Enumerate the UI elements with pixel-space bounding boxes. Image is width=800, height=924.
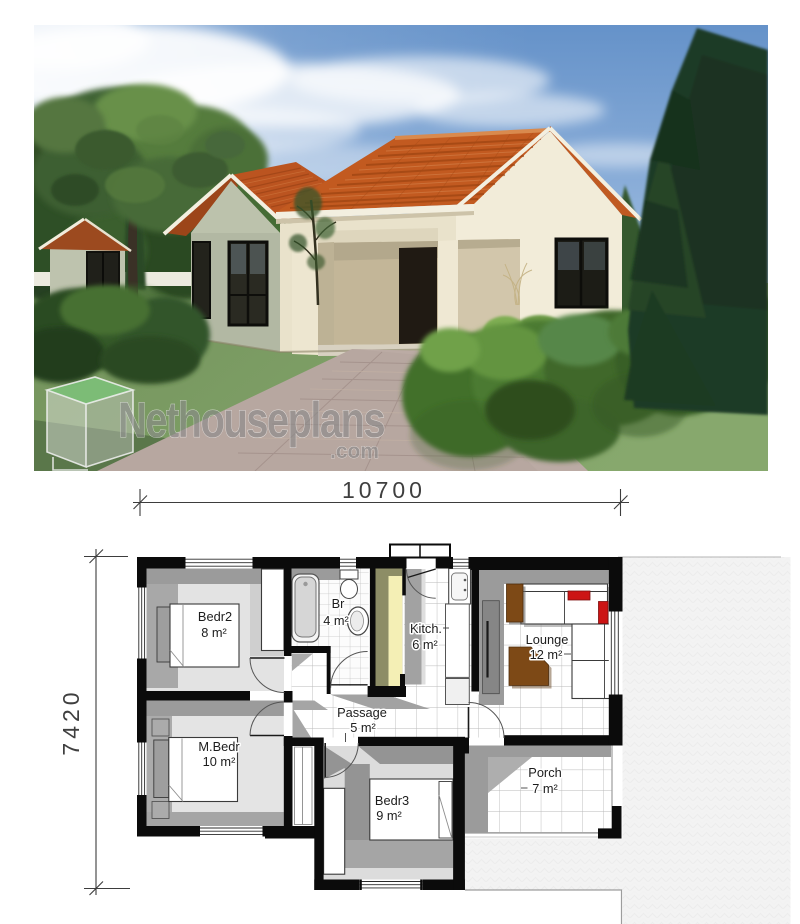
svg-text:10 m²: 10 m²: [203, 754, 236, 769]
svg-text:Passage: Passage: [337, 705, 387, 720]
svg-text:M.Bedr: M.Bedr: [198, 739, 240, 754]
svg-text:5 m²: 5 m²: [350, 720, 376, 735]
svg-text:Bedr2: Bedr2: [198, 609, 232, 624]
svg-text:Porch: Porch: [528, 765, 561, 780]
svg-text:8 m²: 8 m²: [201, 625, 227, 640]
svg-text:Kitch.: Kitch.: [410, 621, 442, 636]
svg-text:Lounge: Lounge: [526, 632, 569, 647]
svg-text:4 m²: 4 m²: [323, 613, 349, 628]
svg-text:Bedr3: Bedr3: [375, 793, 409, 808]
svg-text:7420: 7420: [58, 688, 84, 755]
svg-text:7 m²: 7 m²: [532, 781, 558, 796]
svg-text:9 m²: 9 m²: [376, 808, 402, 823]
svg-text:6 m²: 6 m²: [412, 637, 438, 652]
svg-text:Br: Br: [332, 596, 346, 611]
svg-text:10700: 10700: [342, 477, 426, 503]
svg-text:12 m²: 12 m²: [530, 647, 563, 662]
